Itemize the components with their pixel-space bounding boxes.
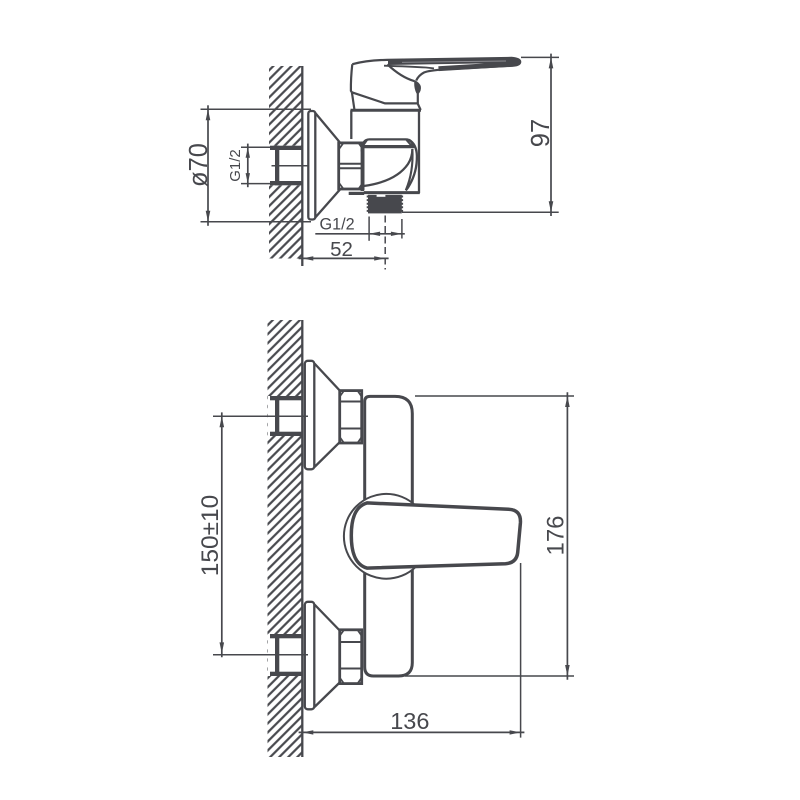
svg-text:G1/2: G1/2 [320,216,355,234]
svg-text:52: 52 [330,238,353,261]
svg-text:97: 97 [527,119,555,147]
svg-text:176: 176 [543,515,570,555]
svg-text:150±10: 150±10 [197,495,224,577]
svg-text:ø70: ø70 [185,143,213,187]
svg-text:G1/2: G1/2 [227,149,244,182]
svg-text:136: 136 [390,708,429,734]
